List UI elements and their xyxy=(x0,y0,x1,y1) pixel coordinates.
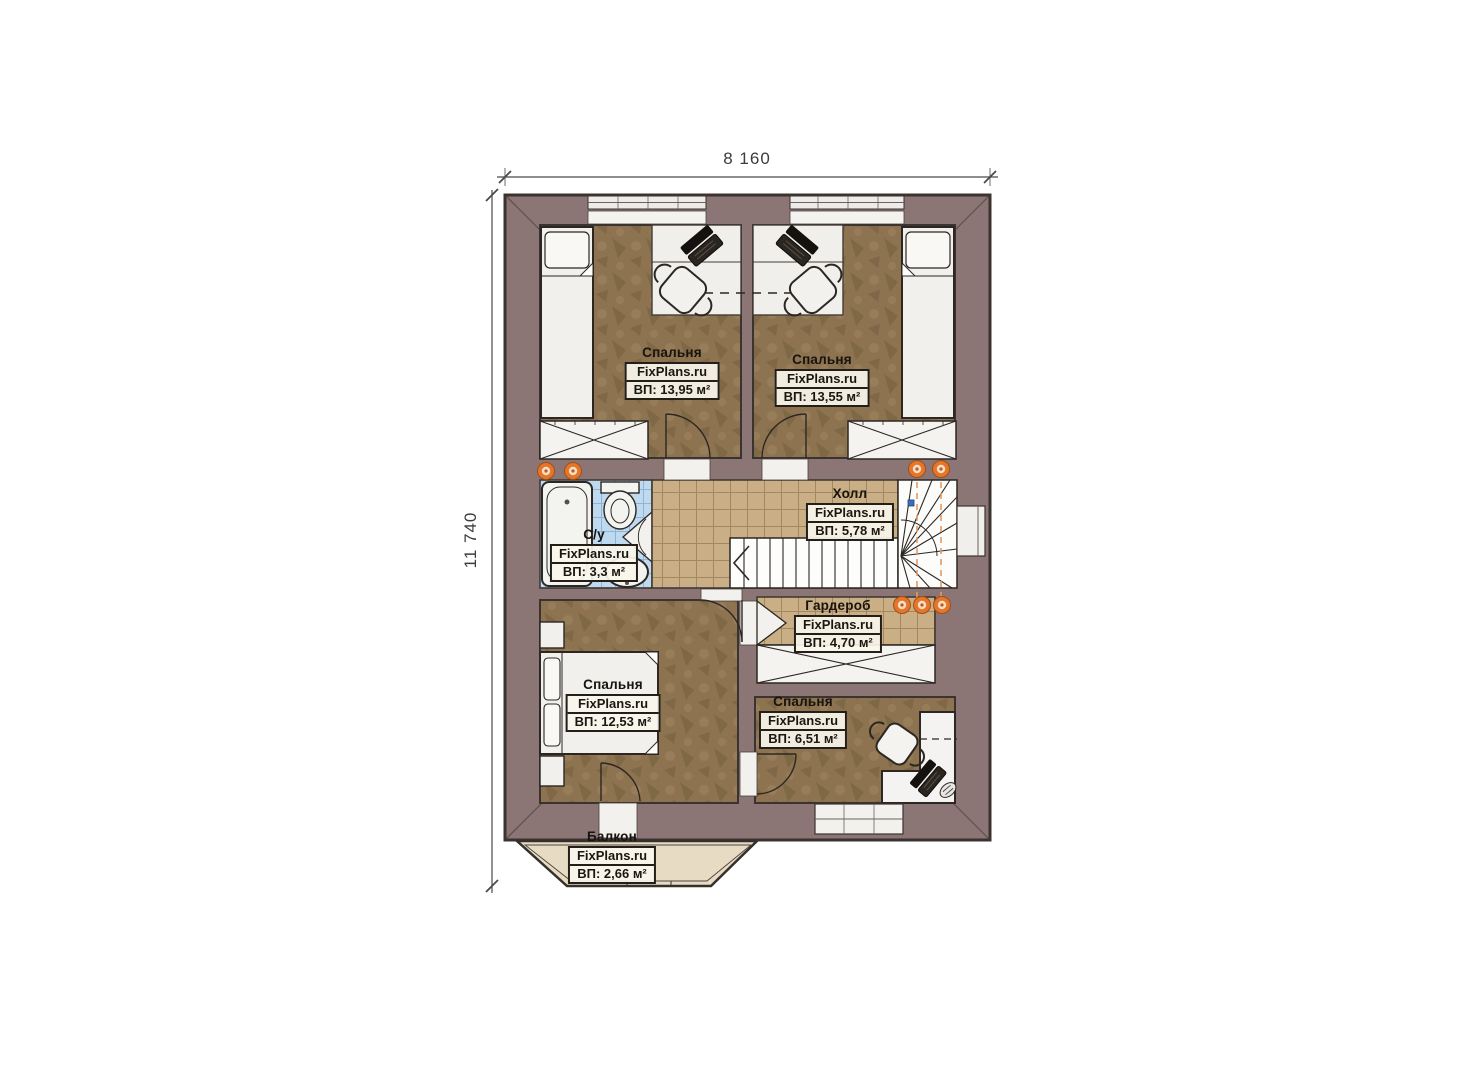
room-info-box: FixPlans.ru ВП: 4,70 м² xyxy=(794,615,882,653)
room-name: Балкон xyxy=(568,829,656,844)
bed-top-right xyxy=(902,227,954,418)
floor-plan-canvas: 8 160 11 740 Спальня FixPlans.ru ВП: 13,… xyxy=(0,0,1473,1080)
room-info-box: FixPlans.ru ВП: 5,78 м² xyxy=(806,503,894,541)
nightstand-icon xyxy=(540,622,564,648)
room-name: Спальня xyxy=(775,352,870,367)
room-name: Спальня xyxy=(759,694,847,709)
nightstand-icon xyxy=(540,756,564,786)
watermark: FixPlans.ru xyxy=(570,848,654,866)
bed-top-left xyxy=(541,227,593,418)
watermark: FixPlans.ru xyxy=(568,696,659,714)
room-label-wardrobe: Гардероб FixPlans.ru ВП: 4,70 м² xyxy=(794,598,882,653)
room-area: ВП: 4,70 м² xyxy=(796,635,880,651)
room-label-bathroom: С/у FixPlans.ru ВП: 3,3 м² xyxy=(550,527,638,582)
watermark: FixPlans.ru xyxy=(761,713,845,731)
watermark: FixPlans.ru xyxy=(777,371,868,389)
room-area: ВП: 5,78 м² xyxy=(808,523,892,539)
room-label-bedroom-top-right: Спальня FixPlans.ru ВП: 13,55 м² xyxy=(775,352,870,407)
closet-top-left xyxy=(540,421,648,459)
room-label-hall: Холл FixPlans.ru ВП: 5,78 м² xyxy=(806,486,894,541)
room-area: ВП: 12,53 м² xyxy=(568,714,659,730)
room-label-bedroom-bottom-right: Спальня FixPlans.ru ВП: 6,51 м² xyxy=(759,694,847,749)
closet-top-right xyxy=(848,421,956,459)
room-area: ВП: 13,55 м² xyxy=(777,389,868,405)
window-stair-right xyxy=(957,506,985,556)
watermark: FixPlans.ru xyxy=(796,617,880,635)
room-name: Спальня xyxy=(625,345,720,360)
room-name: Гардероб xyxy=(794,598,882,613)
room-label-bedroom-top-left: Спальня FixPlans.ru ВП: 13,95 м² xyxy=(625,345,720,400)
room-label-bedroom-bottom-left: Спальня FixPlans.ru ВП: 12,53 м² xyxy=(566,677,661,732)
dimension-width-label: 8 160 xyxy=(723,149,771,169)
room-info-box: FixPlans.ru ВП: 13,95 м² xyxy=(625,362,720,400)
room-info-box: FixPlans.ru ВП: 13,55 м² xyxy=(775,369,870,407)
room-area: ВП: 3,3 м² xyxy=(552,564,636,580)
room-info-box: FixPlans.ru ВП: 6,51 м² xyxy=(759,711,847,749)
watermark: FixPlans.ru xyxy=(552,546,636,564)
room-area: ВП: 2,66 м² xyxy=(570,866,654,882)
room-info-box: FixPlans.ru ВП: 2,66 м² xyxy=(568,846,656,884)
watermark: FixPlans.ru xyxy=(627,364,718,382)
room-area: ВП: 13,95 м² xyxy=(627,382,718,398)
watermark: FixPlans.ru xyxy=(808,505,892,523)
room-name: Спальня xyxy=(566,677,661,692)
room-name: Холл xyxy=(806,486,894,501)
window-bottom-right xyxy=(815,804,903,834)
dimension-height-label: 11 740 xyxy=(461,512,481,569)
room-area: ВП: 6,51 м² xyxy=(761,731,845,747)
stair-node xyxy=(908,500,914,506)
room-info-box: FixPlans.ru ВП: 3,3 м² xyxy=(550,544,638,582)
room-label-balcony: Балкон FixPlans.ru ВП: 2,66 м² xyxy=(568,829,656,884)
room-info-box: FixPlans.ru ВП: 12,53 м² xyxy=(566,694,661,732)
room-name: С/у xyxy=(550,527,638,542)
